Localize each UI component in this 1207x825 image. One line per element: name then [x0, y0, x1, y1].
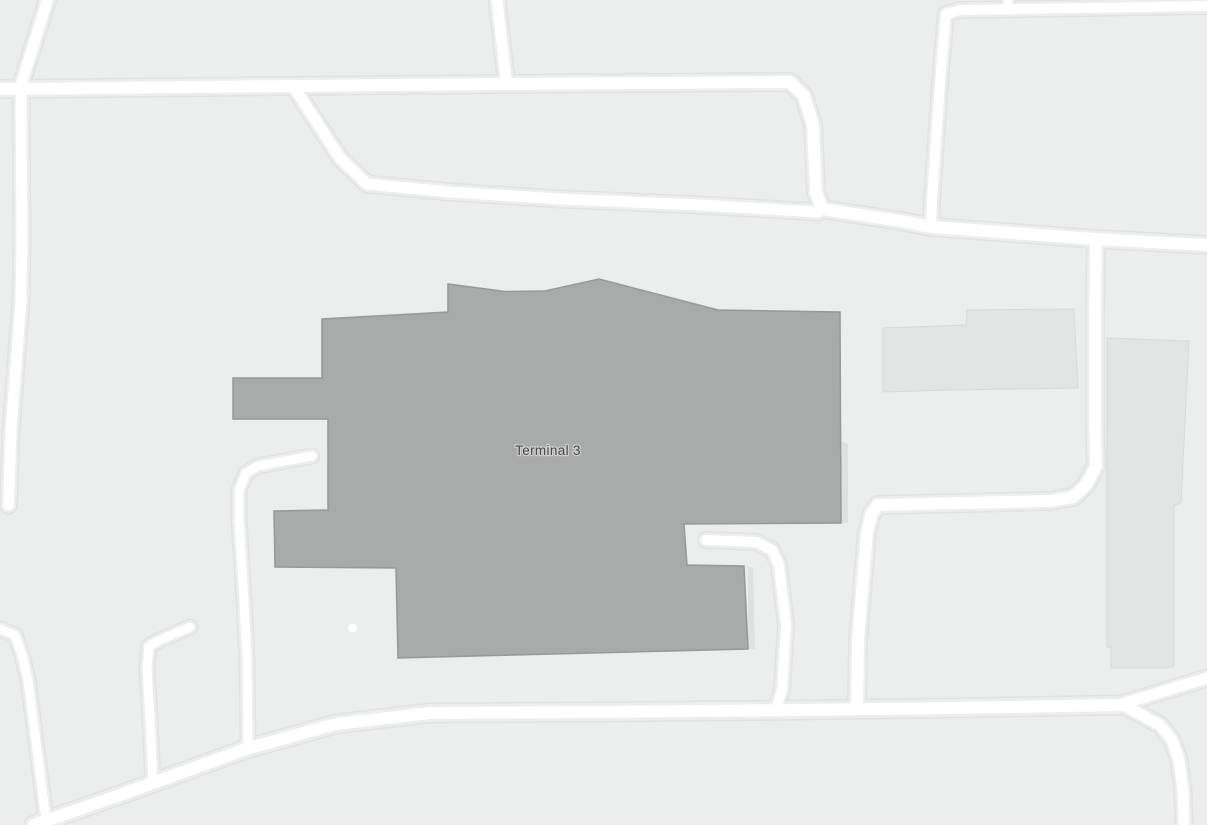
- svg-text:Terminal 3: Terminal 3: [515, 443, 581, 458]
